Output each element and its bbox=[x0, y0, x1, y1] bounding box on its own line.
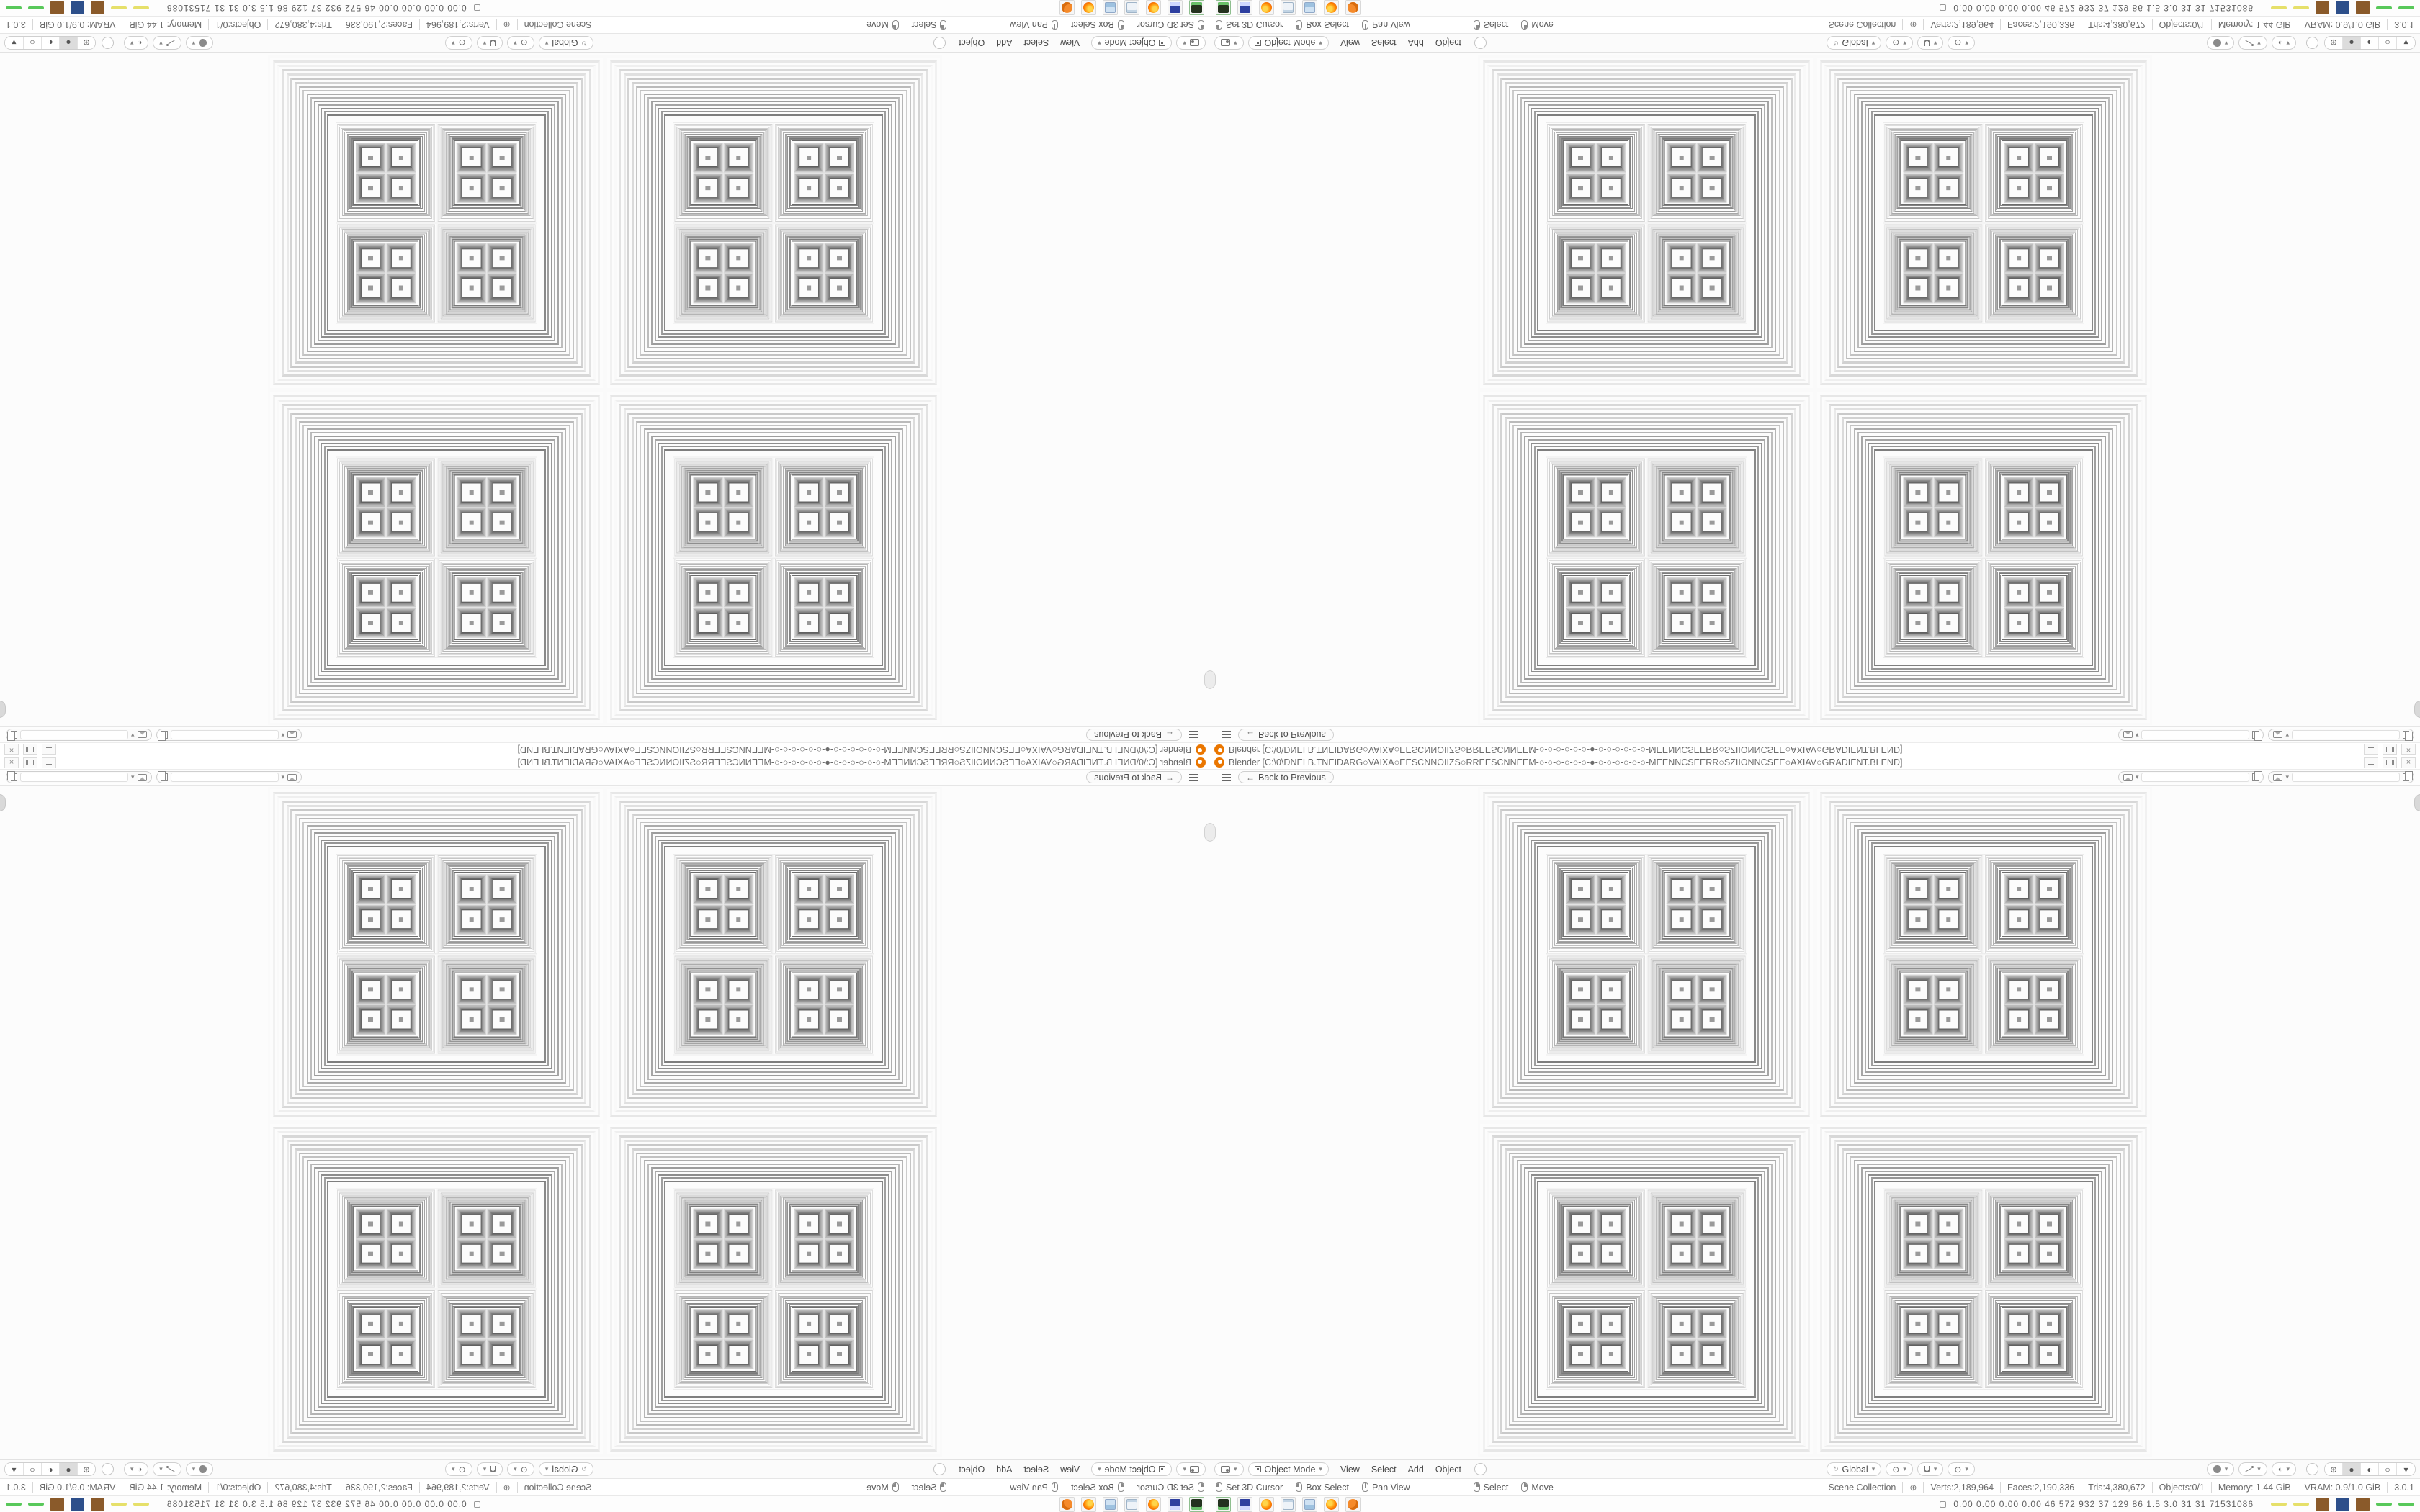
snapping-toggle[interactable]: ▾ bbox=[477, 36, 503, 50]
editor-type-icon bbox=[1221, 1466, 1230, 1473]
menu-add[interactable]: Add bbox=[996, 1464, 1012, 1475]
recursive-screenshot-fractal bbox=[1478, 55, 2152, 725]
minimize-button[interactable] bbox=[2364, 757, 2378, 768]
hint-select: Select bbox=[1474, 1482, 1509, 1493]
editor-type-icon bbox=[1190, 40, 1199, 47]
viewport-header: ▾ Object Mode ▾ View Select Add Object ↻… bbox=[1210, 1459, 2420, 1478]
taskbar-blender-icon[interactable] bbox=[1345, 1, 1361, 16]
tray-yellow-indicator bbox=[133, 6, 149, 9]
taskbar-calculator-icon[interactable] bbox=[1103, 1, 1118, 16]
chevron-down-icon: ▾ bbox=[1934, 1465, 1937, 1473]
toolbar-toggle-handle[interactable] bbox=[1204, 670, 1210, 689]
snapping-toggle[interactable]: ▾ bbox=[477, 1462, 503, 1476]
view-layer-selector[interactable]: ▾ bbox=[2268, 771, 2414, 783]
viewport-header: ▾ Object Mode ▾ View Select Add Object ↻… bbox=[0, 1459, 1210, 1478]
tray-brown-app-icon[interactable] bbox=[50, 1, 64, 15]
hint-label: Set 3D Cursor bbox=[1137, 20, 1194, 30]
shading-rendered-button[interactable]: ○ bbox=[2379, 1463, 2397, 1475]
scene-statistics: Scene Collection ⊕ Verts:2,189,964 Faces… bbox=[6, 1482, 598, 1493]
hint-set-3d-cursor: Set 3D Cursor bbox=[1216, 20, 1283, 30]
taskbar-blender-icon[interactable] bbox=[1059, 1, 1075, 16]
3d-viewport[interactable] bbox=[1210, 53, 2420, 726]
hint-label: Pan View bbox=[1372, 1482, 1410, 1493]
hint-box-select: Box Select bbox=[1071, 1482, 1124, 1493]
shading-solid-button[interactable]: ● bbox=[2343, 1463, 2361, 1475]
hint-label: Move bbox=[866, 1482, 889, 1493]
chevron-down-icon: ▾ bbox=[131, 773, 135, 781]
gizmo-icon bbox=[2213, 39, 2221, 47]
chevron-down-icon: ▾ bbox=[1903, 39, 1906, 47]
chevron-down-icon: ▾ bbox=[483, 1465, 487, 1473]
back-to-previous-button[interactable]: ← Back to Previous bbox=[1086, 729, 1182, 741]
system-monitor-icon bbox=[474, 1501, 480, 1508]
blender-logo-icon bbox=[1196, 757, 1206, 768]
circle-widget[interactable] bbox=[1474, 1463, 1487, 1475]
os-taskbar: 0.00 0.00 0.00 0.00 46 572 932 37 129 86… bbox=[0, 0, 1210, 17]
new-scene-icon[interactable] bbox=[161, 773, 168, 781]
chevron-down-icon: ▾ bbox=[1965, 1465, 1968, 1473]
scene-selector[interactable]: ▾ bbox=[156, 729, 302, 741]
view-layer-selector[interactable]: ▾ bbox=[2268, 729, 2414, 741]
pivot-point-dropdown[interactable]: ⊙ ▾ bbox=[1886, 36, 1913, 50]
hint-select: Select bbox=[912, 20, 947, 30]
stat-tris: Tris:4,380,672 bbox=[2081, 20, 2152, 30]
scene-selector[interactable]: ▾ bbox=[156, 771, 302, 783]
blender-logo-icon bbox=[1214, 744, 1224, 755]
taskbar-firefox-icon[interactable] bbox=[1146, 1, 1161, 16]
menu-object[interactable]: Object bbox=[1435, 38, 1461, 48]
sidebar-toggle-handle[interactable] bbox=[0, 794, 6, 811]
shading-material-button[interactable]: ◐ bbox=[2361, 1463, 2379, 1475]
tray-brown-app-icon[interactable] bbox=[2356, 1498, 2370, 1511]
taskbar-blender-icon[interactable] bbox=[1345, 1497, 1361, 1512]
system-monitor-icon bbox=[1940, 5, 1946, 12]
proportional-editing-toggle[interactable]: ⊙ ▾ bbox=[445, 1462, 472, 1476]
menu-add[interactable]: Add bbox=[1408, 38, 1424, 48]
taskbar-firefox-icon[interactable] bbox=[1081, 1497, 1096, 1512]
mouse-left-drag-icon bbox=[1118, 20, 1124, 30]
stat-vram: VRAM: 0.9/1.0 GiB bbox=[32, 1482, 122, 1493]
chevron-down-icon: ▾ bbox=[1903, 1465, 1906, 1473]
gizmos-dropdown[interactable]: ▾ bbox=[2207, 36, 2235, 50]
system-monitor-icon bbox=[1940, 1501, 1946, 1508]
overlays-dropdown[interactable]: ▾ bbox=[2238, 36, 2267, 50]
taskbar-calculator-icon[interactable] bbox=[1302, 1497, 1317, 1512]
new-scene-icon[interactable] bbox=[161, 731, 168, 739]
circle-widget[interactable] bbox=[102, 37, 114, 49]
blender-window: Blender [C:\0\DNELB.TNEIDARG○VAIXA○EESCN… bbox=[1210, 0, 2420, 756]
menu-object[interactable]: Object bbox=[959, 1464, 985, 1475]
view-layer-selector[interactable]: ▾ bbox=[6, 729, 152, 741]
hamburger-menu-icon[interactable] bbox=[1189, 777, 1198, 778]
chevron-down-icon: ▾ bbox=[2285, 731, 2289, 739]
tray-brown-app-icon[interactable] bbox=[91, 1, 104, 15]
snapping-toggle[interactable]: ▾ bbox=[1917, 36, 1944, 50]
new-view-layer-icon[interactable] bbox=[11, 773, 17, 781]
taskbar-drive-app-icon[interactable] bbox=[1189, 1497, 1204, 1512]
chevron-down-icon: ▾ bbox=[1098, 39, 1101, 47]
editor-type-dropdown[interactable]: ▾ bbox=[1214, 36, 1244, 50]
taskbar-drive-app-icon[interactable] bbox=[1189, 1, 1204, 16]
shading-rendered-button[interactable]: ○ bbox=[2379, 37, 2397, 49]
system-stats-text: 0.00 0.00 0.00 0.00 46 572 932 37 129 86… bbox=[166, 1499, 467, 1509]
stat-objects: Objects:0/1 bbox=[208, 1482, 267, 1493]
taskbar-drive-app-icon[interactable] bbox=[1216, 1, 1231, 16]
chevron-down-icon: ▾ bbox=[1234, 39, 1237, 47]
stat-memory: Memory: 1.44 GiB bbox=[2212, 1482, 2298, 1493]
restore-button[interactable] bbox=[23, 757, 37, 768]
scene-name-field[interactable] bbox=[171, 773, 279, 782]
circle-widget[interactable] bbox=[2306, 1463, 2318, 1475]
menu-select[interactable]: Select bbox=[1371, 1464, 1397, 1475]
taskbar-firefox-icon[interactable] bbox=[1081, 1, 1096, 16]
sidebar-toggle-handle[interactable] bbox=[0, 701, 6, 718]
tray-yellow-indicator bbox=[2271, 6, 2287, 9]
chevron-down-icon: ▾ bbox=[2136, 731, 2139, 739]
os-taskbar: 0.00 0.00 0.00 0.00 46 572 932 37 129 86… bbox=[1210, 0, 2420, 17]
taskbar-firefox-icon[interactable] bbox=[1146, 1497, 1161, 1512]
scene-name-field[interactable] bbox=[171, 730, 279, 739]
menu-select[interactable]: Select bbox=[1023, 38, 1049, 48]
toolbar-toggle-handle[interactable] bbox=[1210, 670, 1216, 689]
xray-toggle[interactable]: ◐ ▾ bbox=[124, 36, 148, 50]
shading-dropdown[interactable]: ▾ bbox=[5, 37, 23, 49]
editor-type-dropdown[interactable]: ▾ bbox=[1176, 1462, 1206, 1476]
new-view-layer-icon[interactable] bbox=[2403, 731, 2409, 739]
hamburger-menu-icon[interactable] bbox=[1189, 734, 1198, 736]
taskbar-drive-app-icon[interactable] bbox=[1216, 1497, 1231, 1512]
chevron-down-icon: ▾ bbox=[282, 773, 285, 781]
tray-green-indicator bbox=[6, 1503, 22, 1506]
3d-viewport[interactable] bbox=[0, 786, 1210, 1459]
chevron-down-icon: ▾ bbox=[2257, 39, 2261, 47]
menu-object[interactable]: Object bbox=[1435, 1464, 1461, 1475]
window-title: Blender [C:\0\DNELB.TNEIDARG○VAIXA○EESCN… bbox=[1229, 757, 2358, 768]
shading-rendered-button[interactable]: ○ bbox=[23, 37, 41, 49]
transform-orientation-dropdown[interactable]: ↻ Global ▾ bbox=[1827, 1462, 1881, 1476]
hint-pan-view: Pan View bbox=[1362, 1482, 1410, 1493]
minimize-button[interactable] bbox=[42, 757, 56, 768]
restore-button[interactable] bbox=[2383, 744, 2397, 755]
restore-button[interactable] bbox=[2383, 757, 2397, 768]
shading-dropdown[interactable]: ▾ bbox=[2397, 1463, 2415, 1475]
mouse-right-drag-icon bbox=[892, 1482, 899, 1492]
system-tray bbox=[2271, 1, 2414, 15]
os-taskbar: 0.00 0.00 0.00 0.00 46 572 932 37 129 86… bbox=[1210, 1495, 2420, 1512]
close-button[interactable]: × bbox=[2401, 757, 2416, 768]
shading-solid-button[interactable]: ● bbox=[59, 1463, 77, 1475]
editor-type-dropdown[interactable]: ▾ bbox=[1214, 1462, 1244, 1476]
chevron-down-icon: ▾ bbox=[2225, 1465, 2228, 1473]
back-to-previous-button[interactable]: ← Back to Previous bbox=[1086, 771, 1182, 783]
taskbar-floppy-64-icon[interactable] bbox=[1237, 1, 1252, 16]
chevron-down-icon: ▾ bbox=[514, 39, 517, 47]
minimize-button[interactable] bbox=[2364, 744, 2378, 755]
mouse-middle-icon bbox=[1362, 1482, 1368, 1492]
status-bar: Set 3D Cursor Box Select Pan View Select… bbox=[0, 1478, 1210, 1495]
tray-blue-app-icon[interactable] bbox=[2336, 1498, 2349, 1511]
chevron-down-icon: ▾ bbox=[514, 1465, 517, 1473]
view-layer-name-field[interactable] bbox=[20, 773, 128, 782]
status-bar: Set 3D Cursor Box Select Pan View Select… bbox=[1210, 1478, 2420, 1495]
recursive-screenshot-fractal bbox=[268, 787, 942, 1457]
taskbar-notepad-icon[interactable] bbox=[1124, 1497, 1139, 1512]
view-layer-icon bbox=[138, 774, 147, 781]
close-button[interactable]: × bbox=[4, 744, 19, 755]
menu-view[interactable]: View bbox=[1340, 38, 1360, 48]
gizmos-dropdown[interactable]: ▾ bbox=[186, 1462, 214, 1476]
topbar: ← Back to Previous ▾ ▾ bbox=[0, 726, 1210, 742]
taskbar-floppy-64-icon[interactable] bbox=[1237, 1497, 1252, 1512]
chevron-down-icon: ▾ bbox=[1183, 39, 1186, 47]
taskbar-firefox-icon[interactable] bbox=[1259, 1497, 1274, 1512]
tray-blue-app-icon[interactable] bbox=[2336, 1, 2349, 15]
tray-brown-app-icon[interactable] bbox=[2316, 1, 2329, 15]
mirrored-desktop-mosaic: Blender [C:\0\DNELB.TNEIDARG○VAIXA○EESCN… bbox=[0, 0, 2420, 1512]
menu-select[interactable]: Select bbox=[1371, 38, 1397, 48]
scene-name-field[interactable] bbox=[2141, 773, 2249, 782]
blender-window: Blender [C:\0\DNELB.TNEIDARG○VAIXA○EESCN… bbox=[0, 0, 1210, 756]
mouse-middle-icon bbox=[1052, 1482, 1058, 1492]
snapping-toggle[interactable]: ▾ bbox=[1917, 1462, 1944, 1476]
pivot-point-dropdown[interactable]: ⊙ ▾ bbox=[507, 36, 534, 50]
pivot-point-dropdown[interactable]: ⊙ ▾ bbox=[1886, 1462, 1913, 1476]
shading-dropdown[interactable]: ▾ bbox=[2397, 37, 2415, 49]
stat-faces: Faces:2,190,336 bbox=[339, 20, 419, 30]
taskbar-notepad-icon[interactable] bbox=[1124, 1, 1139, 16]
tray-brown-app-icon[interactable] bbox=[50, 1498, 64, 1511]
hint-pan-view: Pan View bbox=[1010, 20, 1058, 30]
circle-widget[interactable] bbox=[1474, 37, 1487, 49]
scene-selector[interactable]: ▾ bbox=[2118, 771, 2264, 783]
tray-green-indicator bbox=[28, 1503, 44, 1506]
shading-rendered-button[interactable]: ○ bbox=[23, 1463, 41, 1475]
scene-name-field[interactable] bbox=[2141, 730, 2249, 739]
pivot-icon: ⊙ bbox=[1892, 1465, 1899, 1474]
menu-object[interactable]: Object bbox=[959, 38, 985, 48]
hint-box-select: Box Select bbox=[1296, 1482, 1349, 1493]
pivot-point-dropdown[interactable]: ⊙ ▾ bbox=[507, 1462, 534, 1476]
back-to-previous-label: Back to Previous bbox=[1094, 773, 1162, 783]
taskbar-notepad-icon[interactable] bbox=[1281, 1, 1296, 16]
blender-logo-icon bbox=[1214, 757, 1224, 768]
hint-label: Select bbox=[1484, 20, 1509, 30]
sidebar-toggle-handle[interactable] bbox=[2414, 794, 2420, 811]
sidebar-toggle-handle[interactable] bbox=[2414, 701, 2420, 718]
close-button[interactable]: × bbox=[2401, 744, 2416, 755]
hint-select: Select bbox=[912, 1482, 947, 1493]
view-layer-name-field[interactable] bbox=[2292, 773, 2400, 782]
overlays-dropdown[interactable]: ▾ bbox=[2238, 1462, 2267, 1476]
shading-dropdown[interactable]: ▾ bbox=[5, 1463, 23, 1475]
gizmos-dropdown[interactable]: ▾ bbox=[2207, 1462, 2235, 1476]
taskbar-firefox-icon[interactable] bbox=[1259, 1, 1274, 16]
view-layer-icon bbox=[2273, 732, 2282, 739]
chevron-down-icon: ▾ bbox=[2136, 773, 2139, 781]
mouse-left-drag-icon bbox=[1296, 1482, 1302, 1492]
quadrant-bottom-left-flipped-horizontal: Blender [C:\0\DNELB.TNEIDARG○VAIXA○EESCN… bbox=[0, 756, 1210, 1512]
shading-solid-button[interactable]: ● bbox=[59, 37, 77, 49]
tray-brown-app-icon[interactable] bbox=[2356, 1, 2370, 15]
tray-brown-app-icon[interactable] bbox=[2316, 1498, 2329, 1511]
orientation-icon: ↻ bbox=[1833, 39, 1839, 47]
new-scene-icon[interactable] bbox=[2252, 773, 2259, 781]
circle-widget[interactable] bbox=[933, 1463, 946, 1475]
stat-version: 3.0.1 bbox=[2388, 20, 2414, 30]
taskbar-notepad-icon[interactable] bbox=[1281, 1497, 1296, 1512]
mode-label: Object Mode bbox=[1265, 1464, 1316, 1475]
mode-dropdown[interactable]: Object Mode ▾ bbox=[1248, 1462, 1329, 1476]
tray-blue-app-icon[interactable] bbox=[71, 1498, 84, 1511]
view-layer-name-field[interactable] bbox=[2292, 730, 2400, 739]
proportional-editing-toggle[interactable]: ⊙ ▾ bbox=[1948, 36, 1975, 50]
gizmo-icon bbox=[199, 1465, 207, 1473]
scene-statistics: Scene Collection ⊕ Verts:2,189,964 Faces… bbox=[6, 20, 598, 30]
shading-wireframe-button[interactable]: ⊕ bbox=[2325, 1463, 2343, 1475]
viewport-header: ▾ Object Mode ▾ View Select Add Object ↻… bbox=[0, 34, 1210, 53]
hint-set-3d-cursor: Set 3D Cursor bbox=[1137, 20, 1204, 30]
tray-yellow-indicator bbox=[111, 1503, 127, 1506]
shading-material-button[interactable]: ◐ bbox=[41, 37, 59, 49]
proportional-editing-toggle[interactable]: ⊙ ▾ bbox=[445, 36, 472, 50]
mode-dropdown[interactable]: Object Mode ▾ bbox=[1248, 36, 1329, 50]
stat-objects: Objects:0/1 bbox=[2153, 20, 2212, 30]
hint-box-select: Box Select bbox=[1071, 20, 1124, 30]
xray-icon: ◐ bbox=[2278, 1465, 2283, 1474]
minimize-button[interactable] bbox=[42, 744, 56, 755]
shading-wireframe-button[interactable]: ⊕ bbox=[77, 1463, 95, 1475]
circle-widget[interactable] bbox=[102, 1463, 114, 1475]
taskbar-calculator-icon[interactable] bbox=[1103, 1497, 1118, 1512]
gizmo-icon bbox=[2213, 1465, 2221, 1473]
gizmos-dropdown[interactable]: ▾ bbox=[186, 36, 214, 50]
stat-tris: Tris:4,380,672 bbox=[267, 20, 338, 30]
mode-label: Object Mode bbox=[1105, 1464, 1156, 1475]
pivot-icon: ⊙ bbox=[521, 39, 528, 48]
shading-solid-button[interactable]: ● bbox=[2343, 37, 2361, 49]
system-stats-text: 0.00 0.00 0.00 0.00 46 572 932 37 129 86… bbox=[166, 3, 467, 13]
overlays-dropdown[interactable]: ▾ bbox=[153, 36, 181, 50]
view-layer-selector[interactable]: ▾ bbox=[6, 771, 152, 783]
stat-memory: Memory: 1.44 GiB bbox=[122, 1482, 208, 1493]
stat-objects: Objects:0/1 bbox=[2153, 1482, 2212, 1493]
xray-toggle[interactable]: ◐ ▾ bbox=[2272, 36, 2296, 50]
toolbar-toggle-handle[interactable] bbox=[1210, 823, 1216, 842]
quadrant-top-left-rotated: Blender [C:\0\DNELB.TNEIDARG○VAIXA○EESCN… bbox=[0, 0, 1210, 756]
plus-icon: ⊕ bbox=[496, 20, 517, 30]
system-stats-text: 0.00 0.00 0.00 0.00 46 572 932 37 129 86… bbox=[1953, 1499, 2254, 1509]
menu-select[interactable]: Select bbox=[1023, 1464, 1049, 1475]
transform-orientation-dropdown[interactable]: ↻ Global ▾ bbox=[539, 36, 593, 50]
shading-mode-switch: ⊕ ● ◐ ○ ▾ bbox=[2324, 1462, 2416, 1476]
tray-blue-app-icon[interactable] bbox=[71, 1, 84, 15]
chevron-down-icon: ▾ bbox=[483, 39, 487, 47]
shading-material-button[interactable]: ◐ bbox=[2361, 37, 2379, 49]
hint-label: Pan View bbox=[1010, 1482, 1048, 1493]
restore-button[interactable] bbox=[23, 744, 37, 755]
taskbar-blender-icon[interactable] bbox=[1059, 1497, 1075, 1512]
tray-brown-app-icon[interactable] bbox=[91, 1498, 104, 1511]
back-to-previous-button[interactable]: ← Back to Previous bbox=[1238, 771, 1334, 783]
close-button[interactable]: × bbox=[4, 757, 19, 768]
hamburger-menu-icon[interactable] bbox=[1222, 777, 1231, 778]
system-tray bbox=[6, 1498, 149, 1511]
mouse-middle-icon bbox=[1362, 20, 1368, 30]
toolbar-toggle-handle[interactable] bbox=[1204, 823, 1210, 842]
stat-scene-collection: Scene Collection bbox=[1822, 1482, 1904, 1493]
scene-selector[interactable]: ▾ bbox=[2118, 729, 2264, 741]
xray-toggle[interactable]: ◐ ▾ bbox=[124, 1462, 148, 1476]
mouse-left-drag-icon bbox=[1296, 20, 1302, 30]
chevron-down-icon: ▾ bbox=[130, 39, 134, 47]
tray-yellow-indicator bbox=[111, 6, 127, 9]
proportional-icon: ⊙ bbox=[459, 39, 466, 48]
chevron-down-icon: ▾ bbox=[545, 39, 549, 47]
chevron-down-icon: ▾ bbox=[159, 39, 163, 47]
proportional-icon: ⊙ bbox=[1954, 1465, 1961, 1474]
hint-label: Pan View bbox=[1010, 20, 1048, 30]
taskbar-calculator-icon[interactable] bbox=[1302, 1, 1317, 16]
stat-vram: VRAM: 0.9/1.0 GiB bbox=[32, 20, 122, 30]
mouse-left-drag-icon bbox=[1118, 1482, 1124, 1492]
menu-add[interactable]: Add bbox=[996, 38, 1012, 48]
new-view-layer-icon[interactable] bbox=[2403, 773, 2409, 781]
menu-view[interactable]: View bbox=[1340, 1464, 1360, 1475]
back-to-previous-button[interactable]: ← Back to Previous bbox=[1238, 729, 1334, 741]
shading-wireframe-button[interactable]: ⊕ bbox=[77, 37, 95, 49]
taskbar-firefox-icon[interactable] bbox=[1324, 1, 1339, 16]
new-view-layer-icon[interactable] bbox=[11, 731, 17, 739]
circle-widget[interactable] bbox=[933, 37, 946, 49]
tray-yellow-indicator bbox=[133, 1503, 149, 1506]
gizmo-icon bbox=[199, 39, 207, 47]
proportional-editing-toggle[interactable]: ⊙ ▾ bbox=[1948, 1462, 1975, 1476]
tray-yellow-indicator bbox=[2293, 1503, 2309, 1506]
view-layer-name-field[interactable] bbox=[20, 730, 128, 739]
taskbar-floppy-64-icon[interactable] bbox=[1168, 1, 1183, 16]
shading-wireframe-button[interactable]: ⊕ bbox=[2325, 37, 2343, 49]
xray-toggle[interactable]: ◐ ▾ bbox=[2272, 1462, 2296, 1476]
stat-verts: Verts:2,189,964 bbox=[1924, 20, 2001, 30]
hamburger-menu-icon[interactable] bbox=[1222, 734, 1231, 736]
transform-orientation-dropdown[interactable]: ↻ Global ▾ bbox=[1827, 36, 1881, 50]
shading-material-button[interactable]: ◐ bbox=[41, 1463, 59, 1475]
transform-orientation-dropdown[interactable]: ↻ Global ▾ bbox=[539, 1462, 593, 1476]
taskbar-firefox-icon[interactable] bbox=[1324, 1497, 1339, 1512]
menu-add[interactable]: Add bbox=[1408, 1464, 1424, 1475]
stat-scene-collection: Scene Collection bbox=[1822, 20, 1904, 30]
3d-viewport[interactable] bbox=[1210, 786, 2420, 1459]
overlays-dropdown[interactable]: ▾ bbox=[153, 1462, 181, 1476]
recursive-screenshot-fractal bbox=[1478, 787, 2152, 1457]
hint-pan-view: Pan View bbox=[1362, 20, 1410, 30]
hint-select: Select bbox=[1474, 20, 1509, 30]
new-scene-icon[interactable] bbox=[2252, 731, 2259, 739]
orientation-icon: ↻ bbox=[581, 1465, 587, 1473]
menu-view[interactable]: View bbox=[1060, 1464, 1080, 1475]
blender-logo-icon bbox=[1196, 744, 1206, 755]
mode-dropdown[interactable]: Object Mode ▾ bbox=[1091, 36, 1172, 50]
overlays-icon bbox=[2245, 1466, 2254, 1472]
tray-green-indicator bbox=[2376, 1503, 2392, 1506]
mode-dropdown[interactable]: Object Mode ▾ bbox=[1091, 1462, 1172, 1476]
taskbar-floppy-64-icon[interactable] bbox=[1168, 1497, 1183, 1512]
3d-viewport[interactable] bbox=[0, 53, 1210, 726]
circle-widget[interactable] bbox=[2306, 37, 2318, 49]
chevron-down-icon: ▾ bbox=[1965, 39, 1968, 47]
editor-type-dropdown[interactable]: ▾ bbox=[1176, 36, 1206, 50]
menu-view[interactable]: View bbox=[1060, 38, 1080, 48]
